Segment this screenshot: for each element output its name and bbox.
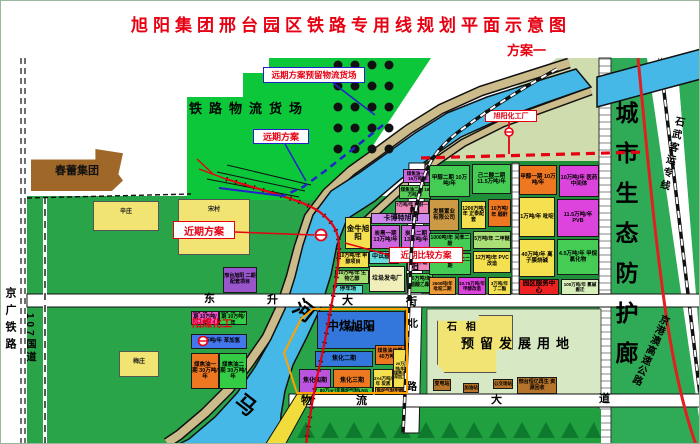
parcel-benzene: 10万吨/年 苯加氢 bbox=[191, 334, 247, 349]
parcel-service-center: 园区服务中心 bbox=[519, 279, 559, 295]
parcel-gas-station: 加油站 bbox=[463, 383, 479, 393]
scheme-label: 方案一 bbox=[507, 40, 546, 59]
planning-map: 旭阳集团邢台园区铁路专用线规划平面示意图 方案一 焦炉煤气一期 10万吨/年焦炉… bbox=[0, 0, 700, 444]
parcel-b-pharma: 10万吨/年 医药中间体 bbox=[559, 165, 599, 197]
village-xinzhuang: 辛庄 bbox=[93, 201, 159, 231]
parcel-coking-2: 焦化二期 bbox=[315, 351, 373, 367]
jingguang-railway-label: 京广铁路 bbox=[4, 287, 15, 355]
callout-future-scheme: 远期方案 bbox=[253, 129, 309, 144]
parcel-chlor-alkali: 100万吨/年 氯碱搬迁 bbox=[561, 279, 599, 295]
parcel-lng: 80万m³/年焦炉气制LNG bbox=[315, 387, 373, 395]
parcel-b-caustic: 40万吨/年 离子膜烧碱 bbox=[519, 239, 555, 277]
parcel-carbon-black-2: 炭黑二期 13万吨/年 bbox=[401, 225, 431, 249]
parcel-parking: 停车场 bbox=[333, 285, 363, 294]
parcel-b-pvb: 11.5万吨/年 PVB bbox=[557, 199, 599, 237]
road-wuliu-char2: 流 bbox=[356, 396, 367, 407]
parcel-methanol-project: 10万吨/年 甲醇项目 bbox=[337, 252, 369, 268]
reserve-land-title: 预留发展用地 bbox=[461, 337, 575, 350]
parcel-a-maleic: 10万吨/年 顺酐 bbox=[488, 199, 511, 227]
parcel-b-methanol-1: 甲醇一期 10万吨/年 bbox=[519, 165, 557, 195]
parcel-bio-ethanol: 10万吨/年 生物乙醇 bbox=[335, 270, 369, 284]
parcel-bus-depot: 公交场站 bbox=[493, 379, 513, 389]
parcel-coal-tar-2: 煤焦油二期 30万吨/年 bbox=[219, 353, 247, 389]
map-annotations: 焦炉煤气一期 10万吨/年焦炉煤气二期 10万吨/年10万吨/年 苯加氢煤焦油一… bbox=[1, 1, 700, 444]
yangmei-chemical-label: 阳煤化工 bbox=[192, 320, 232, 330]
river-name-char-ma: 马 bbox=[231, 391, 260, 420]
callout-future-reserved-yard: 远期方案预留物流货场 bbox=[263, 67, 365, 83]
parcel-a-dev-company: 发展置业 有限公司 bbox=[429, 199, 459, 231]
callout-xuyang-chemical: 旭阳化工厂 bbox=[485, 110, 537, 122]
road-dongsheng-char3: 大 bbox=[342, 296, 353, 307]
parcel-a-adipic-2: 己二酸二期 11.5万吨/年 bbox=[472, 164, 511, 194]
page-title: 旭阳集团邢台园区铁路专用线规划平面示意图 bbox=[1, 11, 700, 36]
parcel-a-methanol-retrofit: 10.75万吨/年 甲醇改造 bbox=[458, 277, 486, 295]
road-xuyang-north-char4: 路 bbox=[407, 383, 417, 393]
parcel-b-pyridine: 1万吨/年 吡啶 bbox=[519, 197, 555, 237]
parcel-gas-methanol: 焦炉气制甲醇 bbox=[375, 387, 405, 395]
parcel-hengyi-recycle: 邢台恒亿再生 资源回收 bbox=[517, 377, 557, 394]
road-xuyang-north-char1: 旭 bbox=[410, 207, 420, 217]
village-meizhuang: 梅庄 bbox=[119, 351, 159, 377]
parcel-a-methanol-2: 甲醇二期 10万吨/年 bbox=[429, 165, 470, 197]
parcel-waste-power-plant: 垃圾发电厂 bbox=[369, 266, 405, 292]
road-xuyang-north-char3: 北 bbox=[408, 320, 418, 330]
yard-title: 铁路物流货场 bbox=[189, 102, 309, 115]
road-wuliu-char4: 道 bbox=[599, 394, 610, 405]
parcel-a-succinate: 3万吨/年 丁二酯 bbox=[488, 277, 511, 295]
parcel-xingtai-phase2: 邢台旭阳 二期配套项目 bbox=[223, 267, 257, 293]
parcel-cabot-xuyang: 卡博特旭阳 bbox=[371, 213, 431, 224]
callout-near-term-compare: 近期比较方案 bbox=[389, 247, 463, 263]
parcel-carbon-black-1: 炭黑一期 13万吨/年 bbox=[371, 225, 400, 249]
parcel-a-zhengtai: 1200万吨/年 正泰配套 bbox=[461, 201, 486, 229]
road-wuliu-char1: 物 bbox=[301, 396, 312, 407]
river-name-char-he: 河 bbox=[289, 297, 318, 326]
parcel-a-pvc-retrofit: 12万吨/年 PVC改造 bbox=[473, 251, 511, 273]
shixiang-label: 石 相 bbox=[447, 323, 479, 333]
parcel-a-dme: 5万吨/年 二甲醚 bbox=[473, 231, 511, 249]
callout-near-term-scheme: 近期方案 bbox=[173, 221, 235, 239]
eco-corridor-title: 城市生态防护廊 bbox=[613, 101, 636, 381]
parcel-coal-tar-s2: 煤焦油二期 16万吨/年 bbox=[399, 185, 431, 199]
zhongmei-xuyang-label: 中煤旭阳 bbox=[327, 320, 375, 332]
road-dongsheng-char4: 街 bbox=[406, 297, 417, 308]
parcel-a-pyridine2: 2600吨/年 吡啶二期 bbox=[429, 277, 456, 295]
parcel-jinniu-xuyang: 金牛旭阳 bbox=[345, 217, 371, 249]
shiwu-hsr-label: 石武客运专线 bbox=[656, 115, 683, 193]
road-xuyang-north-char2: 阳 bbox=[409, 263, 419, 273]
parcel-b-methane-chloride: 4.5万吨/年 甲烷氯化物 bbox=[557, 239, 599, 275]
g107-label: 107国道 bbox=[24, 313, 34, 365]
road-wuliu-char3: 大 bbox=[491, 395, 502, 406]
parcel-substation: 变电站 bbox=[433, 379, 451, 391]
road-dongsheng-char2: 升 bbox=[267, 295, 278, 306]
road-dongsheng-char1: 东 bbox=[204, 294, 215, 305]
parcel-coal-tar-1: 煤焦油一期 30万吨/年 bbox=[191, 353, 219, 389]
chunlei-group-block: 春蕾集团 bbox=[31, 149, 123, 191]
